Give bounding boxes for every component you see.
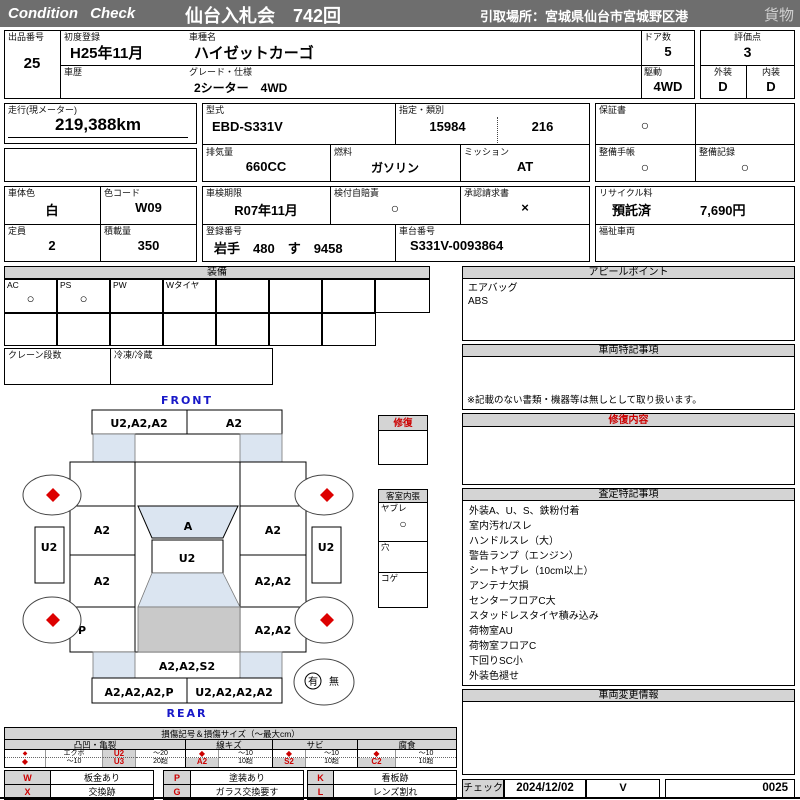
right-front-door-codes: A2 — [265, 524, 281, 537]
assessment-line: 室内汚れ/スレ — [463, 519, 794, 534]
doors-label: ドア数 — [644, 32, 671, 42]
front-bumper-left-codes: U2,A2,A2 — [110, 417, 167, 430]
repair-mini-header: 修復 — [378, 415, 428, 431]
diamond-icon: ◆ — [186, 750, 219, 758]
assessment-line: 警告ランプ（エンジン） — [463, 549, 794, 564]
capacity-label: 定員 — [8, 226, 26, 236]
capacity: 2 — [4, 238, 100, 253]
maintenance-record-label: 整備記録 — [699, 147, 735, 157]
equipment-cell: PS○ — [57, 279, 110, 313]
equipment-cell — [163, 313, 216, 346]
doors: 5 — [641, 44, 695, 59]
equipment-cell — [216, 313, 269, 346]
left-side-panel — [35, 527, 64, 583]
first-registration-label: 初度登録 — [64, 32, 100, 42]
crane-label: クレーン段数 — [8, 350, 62, 360]
welfare-vehicle-label: 福祉車両 — [599, 226, 635, 236]
code-w: W — [5, 771, 51, 785]
header-bar: Condition Check 仙台入札会 742回 引取場所：宮城県仙台市宮城… — [0, 0, 800, 27]
assessment-line: スタッドレスタイヤ積み込み — [463, 609, 794, 624]
equipment-cell — [322, 279, 375, 313]
roof-front-codes: U2 — [179, 552, 196, 565]
assessment-notes-body: 外装A、U、S、鉄粉付着 室内汚れ/スレ ハンドルスレ（大） 警告ランプ（エンジ… — [462, 500, 795, 686]
rear-right-lamp — [240, 652, 282, 678]
code-p: P — [164, 771, 191, 785]
displacement: 660CC — [202, 159, 330, 174]
assessment-line: 下回りSC小 — [463, 654, 794, 669]
legend-group-corrosion: 腐食 — [358, 740, 456, 750]
designation-number: 15984 — [400, 119, 495, 134]
maintenance-book-label: 整備手帳 — [599, 147, 635, 157]
checker-initial: V — [586, 779, 660, 798]
body-color: 白 — [4, 200, 100, 219]
equipment-cell — [269, 313, 322, 346]
front-left-lamp — [93, 434, 135, 462]
left-rear-door-codes: A2 — [94, 575, 110, 588]
score-label: 評価点 — [700, 32, 795, 42]
windshield-codes: A — [184, 520, 193, 533]
type-class-label: 指定・類別 — [399, 105, 444, 115]
transmission-label: ミッション — [464, 147, 509, 157]
recycle-fee-label: リサイクル料 — [599, 188, 653, 198]
left-side-panel-codes: U2 — [41, 541, 58, 554]
repair-content-body — [462, 426, 795, 485]
equipment-cell — [110, 313, 163, 346]
model-name: ハイゼットカーゴ — [194, 42, 314, 63]
assessment-line: 荷物室AU — [463, 624, 794, 639]
cabin-hole-cell: 穴 — [378, 541, 428, 573]
spare-tire-indicator — [294, 659, 354, 705]
assessment-line: 荷物室フロアC — [463, 639, 794, 654]
diamond-small-icon: ◆ — [5, 750, 46, 758]
equipment-cell: Wタイヤ — [163, 279, 216, 313]
displacement-label: 排気量 — [206, 147, 233, 157]
appeal-line: エアバッグ — [463, 282, 794, 295]
equipment-cell — [57, 313, 110, 346]
code-k: K — [308, 771, 334, 785]
front-bumper-right-codes: A2 — [226, 417, 242, 430]
vehicle-notes-body: ※記載のない書類・機器等は無しとして取り扱います。 — [462, 356, 795, 410]
approval-label: 承認請求書 — [464, 188, 509, 198]
color-code-label: 色コード — [104, 188, 140, 198]
damage-legend-table: 損傷記号＆損傷サイズ（～最大cm） 凸凹・亀裂 線キズ サビ 腐食 ◆ エクボ … — [4, 727, 457, 768]
registration-number-label: 登録番号 — [206, 226, 242, 236]
equipment-cell — [269, 279, 322, 313]
code-c2: C2 — [358, 758, 396, 767]
registration-number: 岩手 480 す 9458 — [214, 238, 343, 257]
bottom-rule — [0, 797, 800, 799]
legend-group-dent: 凸凹・亀裂 — [5, 740, 186, 750]
repair-mini-body — [378, 430, 428, 465]
right-side-panel — [312, 527, 341, 583]
code-a2: A2 — [186, 758, 219, 767]
maintenance-record-mark: ○ — [695, 159, 795, 175]
grade-label: グレード・仕様 — [189, 67, 252, 77]
code-s2: S2 — [273, 758, 306, 767]
equipment-cell — [216, 279, 269, 313]
assessment-line: シートヤブレ（10cm以上） — [463, 564, 794, 579]
inspection-expiry-label: 車検期限 — [206, 188, 242, 198]
rear-window — [138, 573, 240, 607]
assessment-line: 外装色褪せ — [463, 669, 794, 684]
condition-check-logo: Condition Check — [8, 5, 135, 22]
inspection-expiry: R07年11月 — [202, 200, 330, 219]
color-code: W09 — [100, 200, 197, 215]
assessment-line: アンテナ欠損 — [463, 579, 794, 594]
code-legend-pg: P 塗装あり G ガラス交換要す — [163, 770, 304, 800]
equipment-cell — [4, 313, 57, 346]
tailgate-codes: A2,A2,S2 — [159, 660, 215, 673]
model-code-label: 型式 — [206, 105, 224, 115]
body-color-label: 車体色 — [8, 188, 35, 198]
chassis-number: S331V-0093864 — [410, 238, 503, 253]
appeal-line: ABS — [463, 295, 794, 308]
lot-number-label: 出品番号 — [8, 32, 44, 42]
rear-label: REAR — [167, 707, 208, 720]
diamond-icon: ◆ — [358, 750, 396, 758]
pickup-location: 引取場所：宮城県仙台市宮城野区港 — [480, 6, 688, 25]
diamond-icon: ◆ — [5, 758, 46, 767]
assessment-line: 外装A、U、S、鉄粉付着 — [463, 504, 794, 519]
legend-title: 損傷記号＆損傷サイズ（～最大cm） — [5, 728, 456, 740]
cabin-burn-cell: コゲ — [378, 572, 428, 608]
maintenance-book-mark: ○ — [595, 159, 695, 175]
grade: 2シーター 4WD — [194, 79, 287, 96]
code-legend-wx: W 板金あり X 交換跡 — [4, 770, 154, 800]
score: 3 — [700, 44, 795, 60]
diamond-icon: ◆ — [273, 750, 306, 758]
front-right-lamp — [240, 434, 282, 462]
mileage: 219,388km — [8, 115, 188, 138]
recycle-fee: 7,690円 — [700, 200, 746, 219]
roof-panel — [138, 607, 240, 652]
auction-sheet: Condition Check 仙台入札会 742回 引取場所：宮城県仙台市宮城… — [0, 0, 800, 800]
interior-grade: D — [747, 79, 795, 94]
reefer-label: 冷凍/冷蔵 — [114, 350, 153, 360]
check-label: チェック — [462, 779, 504, 798]
drive-label: 駆動 — [644, 67, 662, 77]
first-registration: H25年11月 — [70, 42, 143, 63]
insurance-mark: ○ — [330, 200, 460, 216]
fuel-label: 燃料 — [334, 147, 352, 157]
equipment-cell: PW — [110, 279, 163, 313]
model-code: EBD-S331V — [212, 119, 283, 134]
mileage-note-box — [4, 148, 197, 182]
drive: 4WD — [641, 79, 695, 94]
repair-content-header: 修復内容 — [462, 413, 795, 427]
cabin-interior-header: 客室内張 — [378, 489, 428, 503]
recycle-status: 預託済 — [612, 200, 651, 219]
rear-left-lamp — [93, 652, 135, 678]
legend-group-rust: サビ — [273, 740, 358, 750]
chassis-number-label: 車台番号 — [399, 226, 435, 236]
history-label: 車歴 — [64, 67, 82, 77]
exterior-grade-label: 外装 — [700, 67, 746, 77]
load-capacity: 350 — [100, 238, 197, 253]
assessment-line: ハンドルスレ（大） — [463, 534, 794, 549]
equipment-header: 装備 — [4, 266, 430, 279]
cabin-tear-cell: ヤブレ ○ — [378, 502, 428, 542]
model-name-label: 車種名 — [189, 32, 216, 42]
exterior-grade: D — [700, 79, 746, 94]
front-label: FRONT — [161, 394, 213, 407]
code-u3: U3 — [103, 758, 136, 767]
right-quarter-codes: A2,A2 — [255, 624, 292, 637]
load-capacity-label: 積載量 — [104, 226, 131, 236]
rear-bumper-right-codes: U2,A2,A2,A2 — [195, 686, 273, 699]
right-side-panel-codes: U2 — [318, 541, 335, 554]
code-legend-kl: K 看板跡 L レンズ割れ — [307, 770, 457, 800]
approval-mark: × — [460, 200, 590, 215]
lot-number: 25 — [4, 55, 60, 72]
assessment-line: センターフロアC大 — [463, 594, 794, 609]
rear-bumper-left-codes: A2,A2,A2,P — [104, 686, 173, 699]
warranty-label: 保証書 — [599, 105, 626, 115]
interior-grade-label: 内装 — [747, 67, 795, 77]
auction-title: 仙台入札会 742回 — [185, 2, 341, 28]
equipment-cell — [375, 279, 430, 313]
change-info-body — [462, 701, 795, 775]
fuel: ガソリン — [330, 159, 460, 176]
appeal-points-body: エアバッグ ABS — [462, 278, 795, 341]
equipment-cell — [322, 313, 376, 346]
sheet-number: 0025 — [665, 779, 795, 798]
spare-no-label: 無 — [329, 675, 339, 688]
equipment-cell: AC○ — [4, 279, 57, 313]
right-rear-door-codes: A2,A2 — [255, 575, 292, 588]
warranty-mark: ○ — [595, 117, 695, 133]
spare-yes-label: 有 — [308, 675, 318, 688]
disclaimer-note: ※記載のない書類・機器等は無しとして取り扱います。 — [467, 395, 702, 406]
transmission: AT — [460, 159, 590, 174]
insurance-label: 検付自賠責 — [334, 188, 379, 198]
vehicle-category: 貨物 — [764, 4, 794, 25]
mileage-label: 走行(現メーター) — [8, 105, 77, 115]
classification-number: 216 — [500, 119, 585, 134]
legend-group-scratch: 線キズ — [186, 740, 273, 750]
code-u2: U2 — [103, 750, 136, 758]
left-front-door-codes: A2 — [94, 524, 110, 537]
check-date: 2024/12/02 — [504, 779, 586, 798]
